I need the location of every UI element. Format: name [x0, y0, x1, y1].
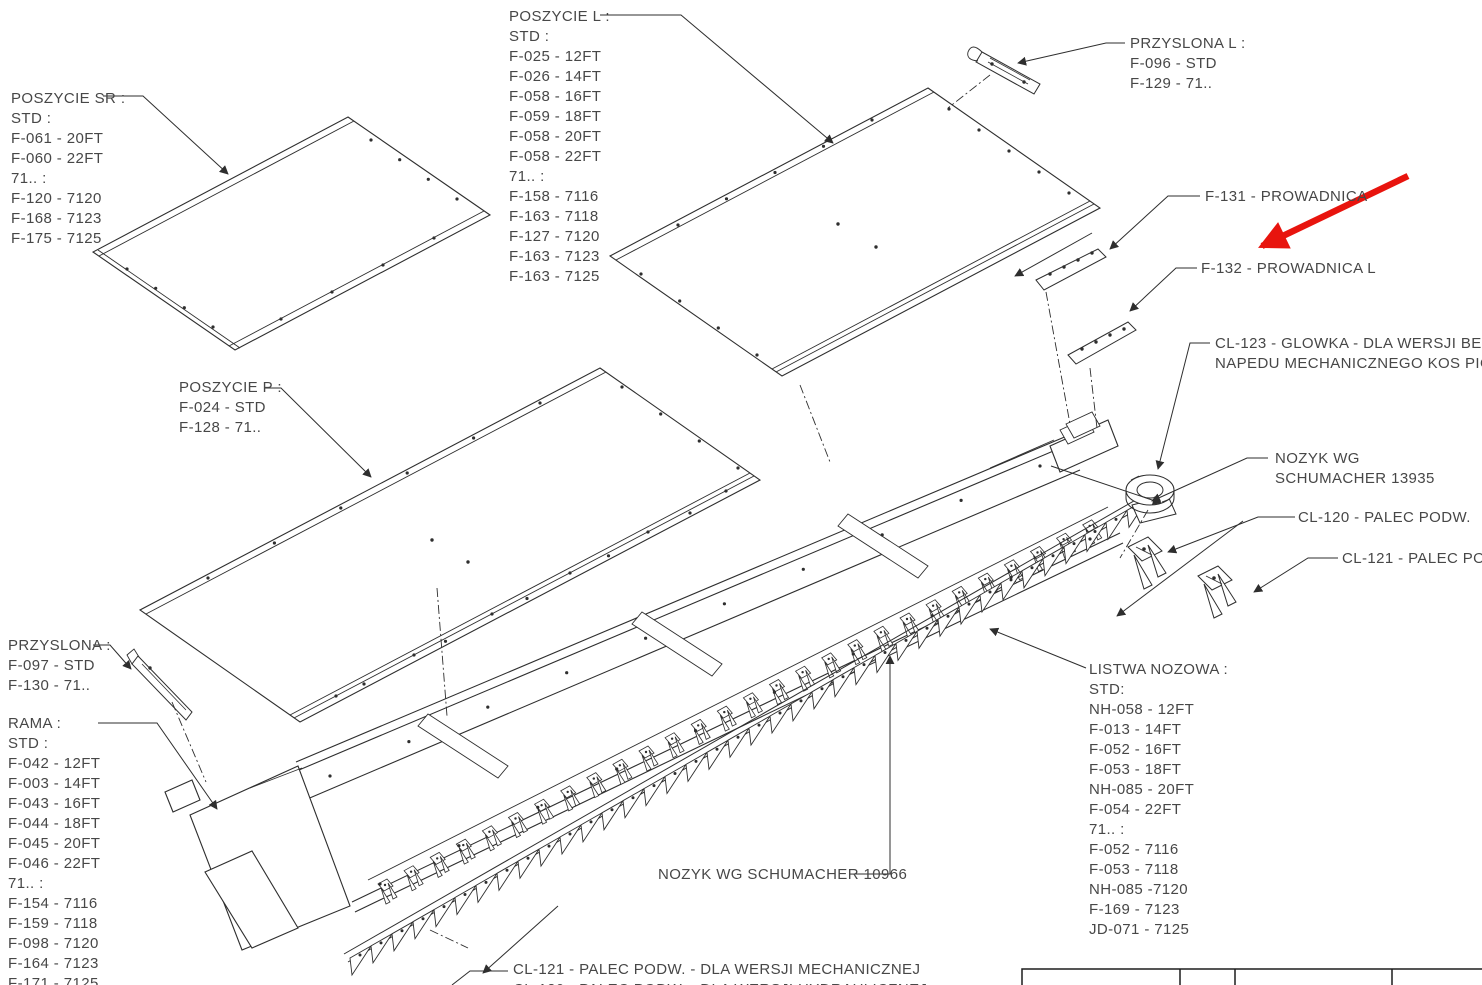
label-line: F-168 - 7123	[11, 209, 125, 229]
label-line: F-042 - 12FT	[8, 754, 100, 774]
label-line: NH-085 -7120	[1089, 880, 1228, 900]
label-line: F-132 - PROWADNICA L	[1201, 259, 1376, 279]
label-line: NH-085 - 20FT	[1089, 780, 1228, 800]
label-line: CL-123 - GLOWKA - DLA WERSJI BEZ	[1215, 334, 1482, 354]
label-nozyk-10966: NOZYK WG SCHUMACHER 10966	[658, 865, 907, 885]
label-cl123: CL-123 - GLOWKA - DLA WERSJI BEZNAPEDU M…	[1215, 334, 1482, 374]
label-line: F-163 - 7118	[509, 207, 610, 227]
label-line: F-052 - 16FT	[1089, 740, 1228, 760]
label-line: F-053 - 7118	[1089, 860, 1228, 880]
title-block-table	[1022, 969, 1482, 985]
exploded-parts-diagram: POSZYCIE SR :STD :F-061 - 20FTF-060 - 22…	[0, 0, 1482, 985]
label-line: SCHUMACHER 13935	[1275, 469, 1435, 489]
label-line: CL-121 - PALEC PODW.	[1342, 549, 1482, 569]
label-line: F-175 - 7125	[11, 229, 125, 249]
label-line: F-059 - 18FT	[509, 107, 610, 127]
label-line: F-026 - 14FT	[509, 67, 610, 87]
label-f131: F-131 - PROWADNICA	[1205, 187, 1368, 207]
label-line: F-045 - 20FT	[8, 834, 100, 854]
label-line: NH-058 - 12FT	[1089, 700, 1228, 720]
label-line: STD :	[509, 27, 610, 47]
label-line: F-097 - STD	[8, 656, 111, 676]
label-line: F-098 - 7120	[8, 934, 100, 954]
label-line: F-046 - 22FT	[8, 854, 100, 874]
label-poszycie-sr: POSZYCIE SR :STD :F-061 - 20FTF-060 - 22…	[11, 89, 125, 249]
label-line: F-128 - 71..	[179, 418, 282, 438]
label-line: F-052 - 7116	[1089, 840, 1228, 860]
label-przyslona-l: PRZYSLONA L :F-096 - STDF-129 - 71..	[1130, 34, 1246, 94]
label-line: POSZYCIE L :	[509, 7, 610, 27]
label-line: F-163 - 7123	[509, 247, 610, 267]
label-line: F-164 - 7123	[8, 954, 100, 974]
label-line: F-154 - 7116	[8, 894, 100, 914]
label-line: STD :	[8, 734, 100, 754]
label-poszycie-p: POSZYCIE P :F-024 - STDF-128 - 71..	[179, 378, 282, 438]
label-line: F-054 - 22FT	[1089, 800, 1228, 820]
label-listwa-nozowa: LISTWA NOZOWA :STD:NH-058 - 12FTF-013 - …	[1089, 660, 1228, 940]
label-f132: F-132 - PROWADNICA L	[1201, 259, 1376, 279]
strip-przyslona	[127, 649, 192, 720]
label-line: F-025 - 12FT	[509, 47, 610, 67]
label-line: F-127 - 7120	[509, 227, 610, 247]
label-line: F-158 - 7116	[509, 187, 610, 207]
label-line: POSZYCIE SR :	[11, 89, 125, 109]
label-line: F-044 - 18FT	[8, 814, 100, 834]
diagram-canvas	[0, 0, 1482, 985]
label-cl120: CL-120 - PALEC PODW.	[1298, 508, 1471, 528]
label-line: 71.. :	[1089, 820, 1228, 840]
panel-poszycie-l	[610, 88, 1100, 376]
label-line: F-163 - 7125	[509, 267, 610, 287]
label-line: F-060 - 22FT	[11, 149, 125, 169]
label-cl121: CL-121 - PALEC PODW.	[1342, 549, 1482, 569]
label-line: PRZYSLONA :	[8, 636, 111, 656]
label-line: F-043 - 16FT	[8, 794, 100, 814]
label-nozyk-13935: NOZYK WGSCHUMACHER 13935	[1275, 449, 1435, 489]
label-line: F-024 - STD	[179, 398, 282, 418]
label-line: F-003 - 14FT	[8, 774, 100, 794]
label-line: POSZYCIE P :	[179, 378, 282, 398]
label-line: JD-071 - 7125	[1089, 920, 1228, 940]
label-line: F-171 - 7125	[8, 974, 100, 985]
label-line: F-058 - 22FT	[509, 147, 610, 167]
label-line: F-013 - 14FT	[1089, 720, 1228, 740]
strip-przyslona-l	[968, 47, 1040, 94]
label-line: F-129 - 71..	[1130, 74, 1246, 94]
label-line: NAPEDU MECHANICZNEGO KOS PIONOWYCH	[1215, 354, 1482, 374]
label-line: F-130 - 71..	[8, 676, 111, 696]
label-line: F-053 - 18FT	[1089, 760, 1228, 780]
detached-fingers	[1128, 537, 1236, 618]
label-line: F-058 - 20FT	[509, 127, 610, 147]
label-line: PRZYSLONA L :	[1130, 34, 1246, 54]
prowadnica-plates	[1036, 249, 1136, 364]
label-line: NOZYK WG	[1275, 449, 1435, 469]
label-line: CL-121 - PALEC PODW. - DLA WERSJI MECHAN…	[513, 960, 927, 980]
label-line: NOZYK WG SCHUMACHER 10966	[658, 865, 907, 885]
label-line: RAMA :	[8, 714, 100, 734]
label-line: STD :	[11, 109, 125, 129]
label-line: STD:	[1089, 680, 1228, 700]
label-line: CL-120 - PALEC PODW. - DLA WERSJI HYDRAU…	[513, 980, 927, 985]
label-line: F-120 - 7120	[11, 189, 125, 209]
label-poszycie-l: POSZYCIE L :STD :F-025 - 12FTF-026 - 14F…	[509, 7, 610, 287]
label-line: 71.. :	[509, 167, 610, 187]
label-line: LISTWA NOZOWA :	[1089, 660, 1228, 680]
label-line: 71.. :	[11, 169, 125, 189]
label-rama: RAMA :STD :F-042 - 12FTF-003 - 14FTF-043…	[8, 714, 100, 985]
label-line: F-096 - STD	[1130, 54, 1246, 74]
label-line: F-061 - 20FT	[11, 129, 125, 149]
label-line: 71.. :	[8, 874, 100, 894]
label-line: F-058 - 16FT	[509, 87, 610, 107]
label-line: F-159 - 7118	[8, 914, 100, 934]
label-przyslona: PRZYSLONA :F-097 - STDF-130 - 71..	[8, 636, 111, 696]
label-line: F-131 - PROWADNICA	[1205, 187, 1368, 207]
label-line: CL-120 - PALEC PODW.	[1298, 508, 1471, 528]
panel-poszycie-sr	[93, 117, 490, 350]
label-cl121-bottom: CL-121 - PALEC PODW. - DLA WERSJI MECHAN…	[513, 960, 927, 985]
label-line: F-169 - 7123	[1089, 900, 1228, 920]
